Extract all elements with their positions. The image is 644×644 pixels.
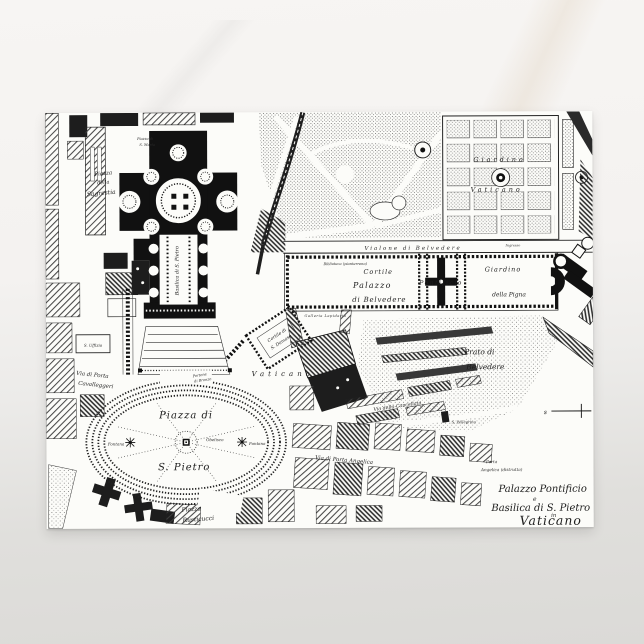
label-cortile: Cortile — [363, 268, 393, 276]
title-line-2: e — [533, 496, 537, 503]
label-s-pellegrino: S. Pellegrino — [452, 419, 477, 424]
label-prato-1: Prato di — [463, 347, 495, 356]
fountain-right — [237, 437, 247, 447]
label-obelisco: Obelisco — [206, 437, 224, 442]
label-prato-2: Belvedere — [465, 362, 505, 371]
label-piazza-spietro-2: S. Pietro — [158, 462, 210, 473]
label-vaticano-palazzo: Vaticano — [252, 370, 314, 378]
label-fontana-right: Fontana — [248, 441, 266, 446]
label-fontana-left: Fontana — [107, 441, 125, 446]
marble-background: Cortile di S. Damaso — [0, 0, 644, 644]
label-scale-letter: s — [544, 409, 547, 416]
basilica-steps — [138, 326, 232, 374]
label-piazza-sagrestia-2: della — [97, 179, 110, 186]
label-porta-angelica-2: Angelica (distrutta) — [480, 467, 523, 472]
map-postcard: Cortile di S. Damaso — [45, 111, 593, 529]
label-giardino-pigna-1: Giardino — [485, 265, 521, 273]
label-vialone: Vialone di Belvedere — [364, 246, 461, 252]
label-pontificio: Pontificio — [418, 280, 462, 287]
label-galleria-lapidaria: Galleria Lapidaria — [305, 314, 347, 318]
label-giardino-vaticano-1: Giardino — [473, 156, 525, 164]
title-line-5: Vaticano — [520, 513, 582, 528]
label-s-marta-1: Piazza di — [136, 137, 153, 141]
label-ingresso: Ingresso — [504, 243, 520, 247]
title-line-1: Palazzo Pontificio — [497, 484, 586, 495]
label-palazzo: Palazzo — [352, 281, 392, 290]
label-basilica-axis: Basilica di S. Pietro — [174, 246, 180, 296]
giardino-vaticano-grid — [443, 111, 593, 239]
vatican-map: Cortile di S. Damaso — [45, 111, 593, 529]
label-piazza-spietro-1: Piazza di — [158, 410, 213, 421]
label-biblioteca: Biblioteca (pianterreno) — [322, 262, 367, 266]
fountain-left — [125, 437, 135, 447]
label-giardino-pigna-2: della Pigna — [492, 291, 526, 298]
label-s-marta-2: S. Marta — [139, 143, 155, 147]
obelisk — [183, 439, 190, 446]
label-s-uffizio: S. Uffizio — [84, 343, 103, 348]
label-di-belvedere: di Belvedere — [352, 296, 406, 304]
label-porta-angelica-1: Porta — [485, 459, 498, 464]
dome — [155, 178, 201, 224]
label-giardino-vaticano-2: Vaticano — [471, 186, 523, 194]
